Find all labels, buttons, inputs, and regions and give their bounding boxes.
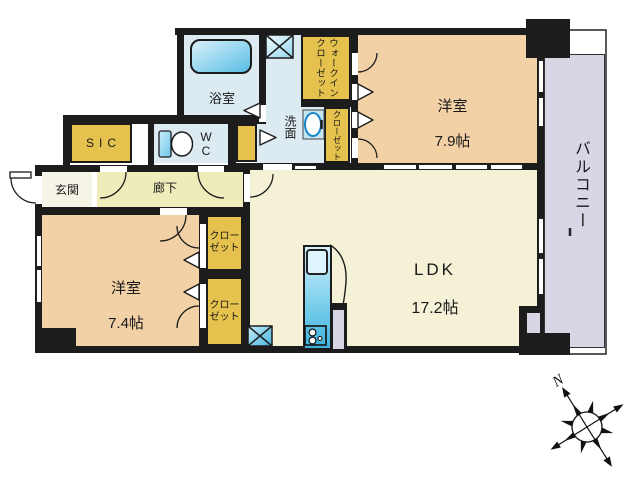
ldk-name: LDK (414, 260, 456, 279)
bathroom-label: 浴室 (186, 91, 258, 106)
refrigerator-space (333, 310, 344, 349)
sic-label: SIC (81, 136, 121, 150)
window (538, 258, 544, 295)
sliding-door-panel (418, 164, 453, 171)
door-gap (92, 172, 97, 207)
bedroom2-label: 洋室 7.4帖 (70, 262, 182, 333)
kitchen-sink (306, 249, 328, 275)
sliding-door-panel (455, 164, 488, 171)
bedroom2-closet-bottom: クロー ゼット (206, 277, 243, 346)
door-gap (200, 300, 206, 328)
door-gap (35, 176, 42, 204)
pillar (519, 333, 570, 355)
bedroom2-size: 7.4帖 (108, 315, 144, 332)
sliding-door-panel (490, 164, 523, 171)
bedroom2-name: 洋室 (111, 280, 141, 297)
door-gap (259, 105, 266, 122)
entrance-label: 玄関 (42, 183, 92, 197)
wall (177, 28, 184, 124)
corridor-label: 廊下 (120, 181, 210, 195)
window (538, 218, 544, 254)
bedroom2-closet-top: クロー ゼット (206, 215, 243, 271)
compass-rose-icon: N (518, 352, 640, 480)
window (36, 235, 42, 267)
door-gap (100, 166, 127, 173)
door-gap (160, 208, 187, 215)
pass-window (294, 165, 317, 170)
door-gap (352, 112, 358, 128)
door-gap (200, 224, 206, 252)
window (538, 97, 544, 127)
bedroom1-label: 洋室 7.9帖 (395, 80, 510, 151)
washroom-label: 洗面 (277, 109, 297, 145)
door-gap (352, 53, 358, 75)
wall (228, 124, 236, 165)
wall (243, 215, 250, 346)
wc-label: WC (197, 127, 213, 161)
wall (148, 124, 154, 165)
closet-storage-gap (133, 124, 148, 165)
pillar (526, 19, 570, 58)
walk-in-closet: ウォークイン クローゼット (301, 35, 351, 101)
ldk-label: LDK 17.2帖 (373, 241, 497, 319)
walk-in-closet-label: ウォークイン クローゼット (313, 38, 339, 98)
ldk-size: 17.2帖 (411, 300, 458, 317)
shoe-closet: SIC (70, 123, 132, 163)
wall (35, 207, 250, 215)
door-gap (200, 252, 206, 268)
hall-closet-label: クローゼット (332, 110, 342, 161)
door-gap (352, 138, 358, 158)
wc-floor (154, 124, 228, 163)
door-gap (263, 164, 292, 171)
washroom-cabinet (236, 124, 257, 162)
closet-label: クロー ゼット (210, 300, 240, 324)
door-gap (352, 84, 358, 100)
wall (63, 115, 70, 172)
window (538, 60, 544, 93)
bedroom1-size: 7.9帖 (435, 133, 471, 150)
door-gap (200, 284, 206, 300)
balcony-label: バルコニー (556, 135, 589, 235)
bedroom1-name: 洋室 (437, 98, 467, 115)
compass-north-label: N (549, 371, 568, 391)
wall (175, 28, 543, 35)
washroom-floor (257, 124, 266, 163)
floor-plan: SIC ウォークイン クローゼット クローゼット クロー ゼット クロー ゼット (0, 0, 640, 480)
window (36, 269, 42, 303)
door-gap (198, 166, 224, 173)
sliding-door-panel (383, 164, 417, 171)
balcony-notch (527, 313, 540, 333)
door-gap (244, 174, 250, 202)
hall-closet: クローゼット (324, 107, 350, 163)
closet-label: クロー ゼット (210, 231, 240, 255)
